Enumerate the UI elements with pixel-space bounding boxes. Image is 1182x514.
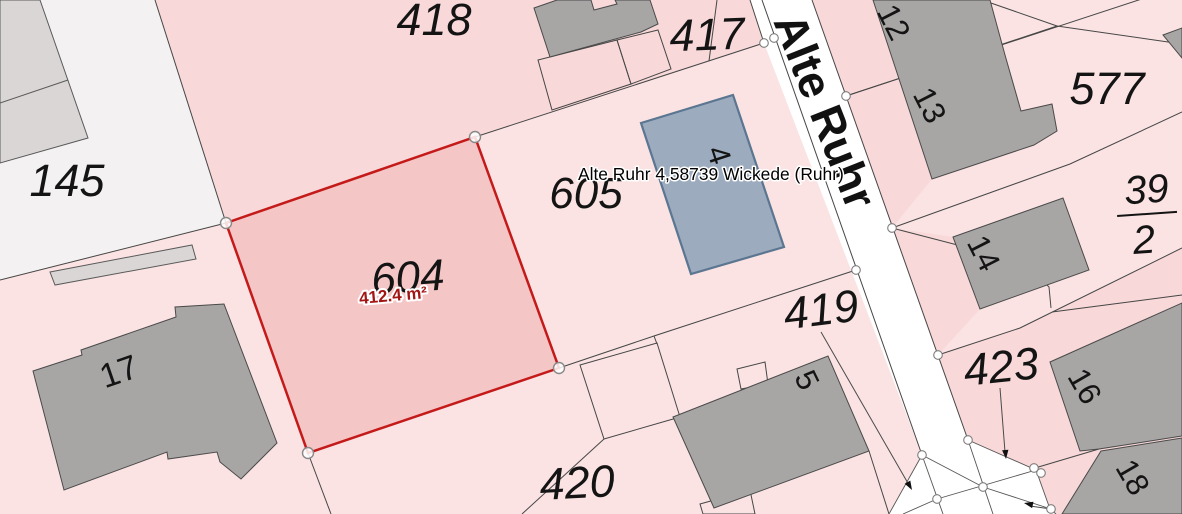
svg-text:145: 145 [29, 155, 105, 206]
svg-text:39: 39 [1123, 166, 1170, 213]
svg-text:577: 577 [1069, 63, 1146, 114]
svg-text:417: 417 [669, 8, 748, 62]
svg-text:Alte Ruhr 4,58739 Wickede (Ruh: Alte Ruhr 4,58739 Wickede (Ruhr) [578, 164, 844, 184]
svg-text:423: 423 [961, 337, 1041, 396]
svg-text:418: 418 [396, 0, 471, 45]
svg-text:2: 2 [1130, 217, 1156, 263]
svg-text:420: 420 [538, 455, 616, 510]
svg-text:419: 419 [781, 280, 862, 340]
